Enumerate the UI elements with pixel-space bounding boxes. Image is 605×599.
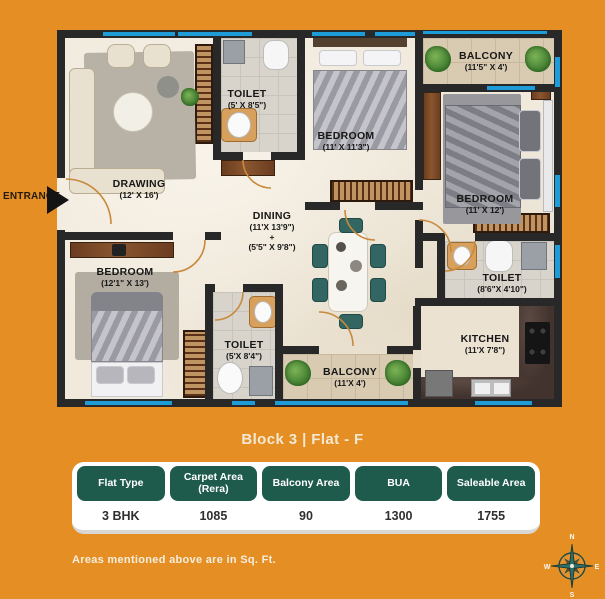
window [555,57,560,87]
room-dims: (11'X 4') [307,378,393,388]
spec-col-flat-type: Flat Type 3 BHK [77,466,165,530]
room-label-kitchen: KITCHEN (11'X 7'8") [441,333,529,355]
spec-col-balcony-area: Balcony Area 90 [262,466,350,530]
room-name: TOILET [207,339,281,351]
window [103,32,175,36]
window [475,401,532,405]
toilet-wc [227,112,251,138]
room-label-toilet-bottom: TOILET (5'X 8'4") [207,339,281,361]
spec-col-saleable-area: Saleable Area 1755 [447,466,535,530]
plant [181,88,199,106]
header-chip: BUA [355,466,443,501]
shower [249,366,273,396]
compass-rose-icon: N E S W [542,530,602,598]
wall-segment [415,30,423,190]
wall-segment [57,232,173,240]
wall-segment [415,220,423,268]
toilet-wc [217,362,243,394]
table-value: 1755 [447,501,535,530]
window [178,32,252,36]
bedroom-right-wardrobe-strip [423,92,441,180]
header-chip: Balcony Area [262,466,350,501]
dining-table [328,232,368,312]
room-label-bedroom-top: BEDROOM (11' X 11'3") [303,130,389,152]
room-label-toilet-right: TOILET (8'6"X 4'10") [457,272,547,294]
pillow [319,50,357,66]
armchair [107,44,135,68]
bed-headboard [313,38,407,47]
pillow [96,366,124,384]
wall-segment [415,298,554,306]
room-dims: + [229,232,315,242]
spec-col-bua: BUA 1300 [355,466,443,530]
armchair [143,44,171,68]
room-label-drawing: DRAWING (12' X 16') [89,178,189,200]
room-name: BALCONY [307,366,393,378]
header-chip: Flat Type [77,466,165,501]
plate [350,260,362,272]
room-name: TOILET [457,272,547,284]
wall-segment [305,202,340,210]
plate [336,242,346,252]
wood-threshold [221,160,275,176]
compass-e: E [595,564,600,571]
room-dims: (12' X 16') [89,190,189,200]
dining-chair [370,244,386,268]
wall-segment [413,306,421,350]
dining-chair [339,314,363,329]
compass-w: W [544,564,551,571]
area-note: Areas mentioned above are in Sq. Ft. [72,554,276,566]
floor-plan: DRAWING (12' X 16') TOILET (5' X 8'5") B… [57,30,562,407]
washbasin [263,40,289,70]
room-label-balcony-bottom: BALCONY (11'X 4') [307,366,393,388]
room-dims: (11'X 7'8") [441,345,529,355]
room-label-balcony-top: BALCONY (11'5" X 4') [443,50,529,72]
window [375,32,415,36]
window [487,86,535,90]
room-name: BEDROOM [79,266,171,278]
room-name: BEDROOM [303,130,389,142]
window [275,401,408,405]
table-value: 1300 [355,501,443,530]
room-label-bedroom-left: BEDROOM (12'1" X 13') [79,266,171,288]
page: { "title": "Block 3 | Flat - F", "note":… [0,0,605,599]
wall-segment [387,346,413,354]
side-table [157,76,179,98]
room-dims: (11'X 13'9") [229,222,315,232]
room-name: BALCONY [443,50,529,62]
bed-headboard [543,100,553,212]
washbasin [254,301,272,323]
window [85,401,172,405]
dining-chair [339,218,363,233]
room-dims: (5'X 8'4") [207,351,281,361]
window [555,175,560,207]
table-value: 90 [262,501,350,530]
dining-chair [370,278,386,302]
wall-segment [213,152,243,160]
wall-segment [57,30,65,178]
washbasin [453,246,471,266]
table-value: 3 BHK [77,501,165,530]
wall-segment [375,202,423,210]
wall-segment [205,284,215,292]
pillow [363,50,401,66]
wall-segment [283,346,319,354]
wall-segment [423,233,445,241]
room-dims: (11'5" X 4') [443,62,529,72]
kitchen-unit [425,370,453,397]
compass-n: N [569,534,574,541]
room-dims: (11' X 12') [441,205,529,215]
room-name: KITCHEN [441,333,529,345]
room-name: DRAWING [89,178,189,190]
wall-segment [57,230,65,407]
wall-segment [271,152,305,160]
wall-segment [413,368,421,399]
header-chip: Carpet Area (Rera) [170,466,258,501]
sink [471,379,511,397]
bedroom-top-wardrobe [330,180,413,202]
shower [223,40,245,64]
room-dims: (12'1" X 13') [79,278,171,288]
room-label-dining: DINING (11'X 13'9") + (5'5" X 9'8") [229,210,315,252]
room-name: BEDROOM [441,193,529,205]
table-value: 1085 [170,501,258,530]
room-dims: (5' X 8'5") [209,100,285,110]
toilet-wc [485,240,513,272]
room-dims: (5'5" X 9'8") [229,242,315,252]
window [232,401,255,405]
bed-duvet [91,310,163,362]
compass-center [570,564,574,568]
wall-segment [205,232,221,240]
room-dims: (8'6"X 4'10") [457,284,547,294]
entrance-label: ENTRANCE [3,191,49,202]
page-title: Block 3 | Flat - F [0,431,605,448]
wall-segment [475,233,554,241]
room-label-toilet-top: TOILET (5' X 8'5") [209,88,285,110]
spec-table: Flat Type 3 BHK Carpet Area (Rera) 1085 … [72,462,540,534]
door-arc [173,240,205,272]
room-dims: (11' X 11'3") [303,142,389,152]
bed-headboard [91,292,163,310]
pillow [127,366,155,384]
dining-chair [312,278,328,302]
compass-s: S [570,592,575,598]
shower [521,242,547,270]
wall-segment [437,241,445,298]
window [312,32,365,36]
spec-col-carpet-area: Carpet Area (Rera) 1085 [170,466,258,530]
coffee-table [113,92,153,132]
entrance-arrow-icon [47,186,69,214]
room-name: TOILET [209,88,285,100]
header-chip: Saleable Area [447,466,535,501]
window [555,245,560,278]
room-label-bedroom-right: BEDROOM (11' X 12') [441,193,529,215]
plate [336,280,347,291]
room-name: DINING [229,210,315,222]
pillow [519,110,541,152]
balcony-railing [423,31,547,34]
dresser-decor [112,244,126,256]
